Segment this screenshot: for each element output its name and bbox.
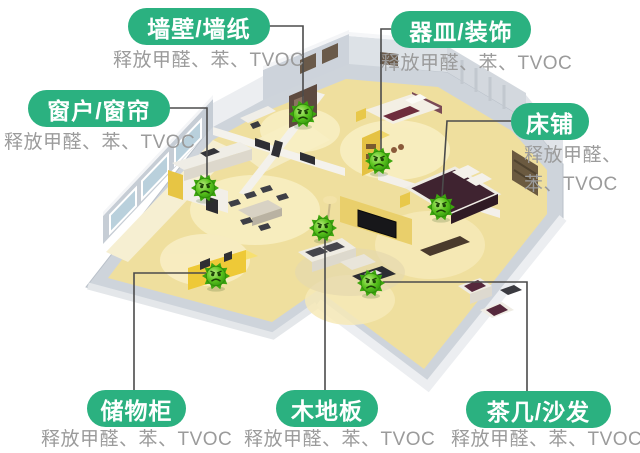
bed-sub-line2: 苯、TVOC — [524, 175, 618, 194]
vessel-decor-sub: 释放甲醛、苯、TVOC — [381, 54, 572, 73]
bed-pill: 床铺 — [511, 103, 589, 140]
wall-wallpaper-sub: 释放甲醛、苯、TVOC — [113, 51, 304, 70]
window-curtain-sub: 释放甲醛、苯、TVOC — [4, 133, 195, 152]
vessel-decor-pill: 器皿/装饰 — [391, 11, 531, 48]
tea-table-sofa-sub: 释放甲醛、苯、TVOC — [451, 430, 640, 449]
storage-cabinet-sub: 释放甲醛、苯、TVOC — [41, 430, 232, 449]
wood-floor-pill: 木地板 — [276, 390, 378, 427]
wall-wallpaper-pill: 墙壁/墙纸 — [128, 8, 270, 45]
infographic-canvas: 墙壁/墙纸 释放甲醛、苯、TVOC 器皿/装饰 释放甲醛、苯、TVOC 窗户/窗… — [0, 0, 640, 453]
wood-floor-sub: 释放甲醛、苯、TVOC — [244, 430, 435, 449]
storage-cabinet-pill: 储物柜 — [87, 390, 186, 427]
tea-table-sofa-pill: 茶几/沙发 — [466, 391, 611, 428]
window-curtain-pill: 窗户/窗帘 — [28, 90, 170, 127]
bed-sub-line1: 释放甲醛、 — [524, 146, 622, 165]
